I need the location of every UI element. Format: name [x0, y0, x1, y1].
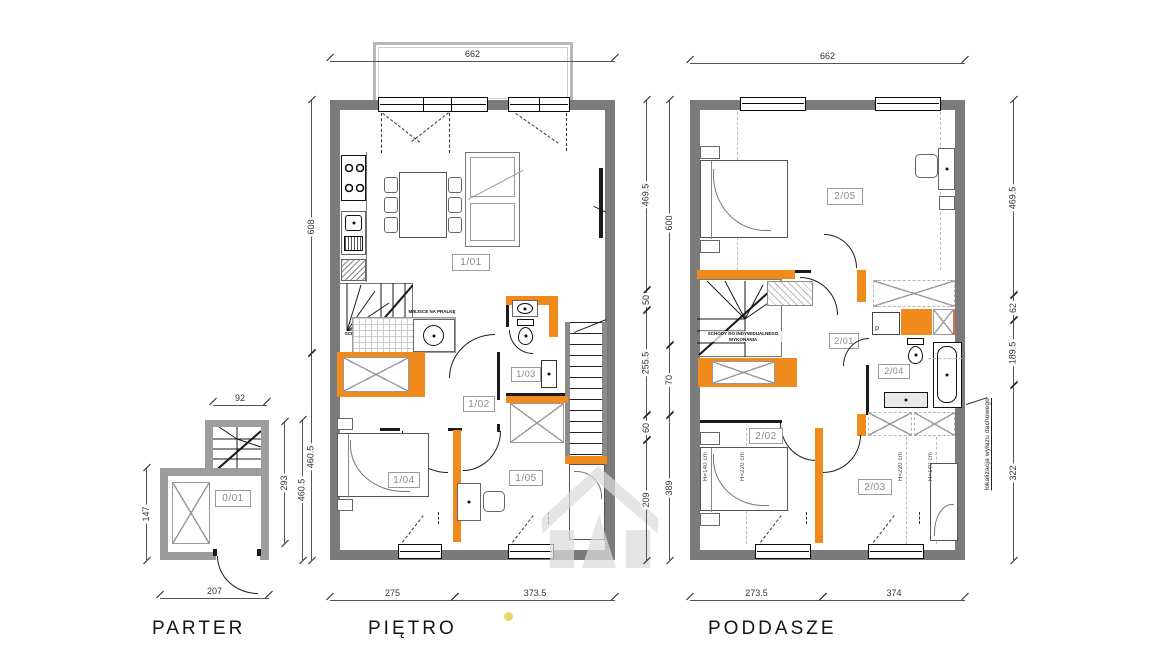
poddasze-dim-r-2: 189.5: [1013, 320, 1014, 385]
poddasze-window-top-right: [875, 97, 941, 111]
floor-title-poddasze: PODDASZE: [708, 618, 837, 640]
window-swing-dash: [919, 512, 920, 524]
poddasze-dim-r-1: 62: [1013, 295, 1014, 320]
poddasze-plan: 2/05 SCHODY DO INDYWIDUALNEGO WYKONANIA …: [0, 0, 1152, 648]
attic-wall-orange-stub: [857, 414, 866, 436]
poddasze-dim-top: 662: [690, 63, 965, 64]
desk-chair: [915, 154, 938, 178]
interior-wall: [866, 365, 869, 415]
roof-line-dashed: [928, 358, 962, 359]
room-label-2-05: 2/05: [827, 188, 863, 205]
bed-2-03: [930, 463, 958, 541]
attic-wall-orange-stub: [857, 270, 866, 302]
bath-sink-cabinet: [884, 392, 928, 408]
desk-shelf: [939, 196, 955, 210]
bed-head-line: [711, 448, 712, 512]
nightstand: [700, 432, 720, 445]
bath-orange-block: [901, 309, 932, 335]
floor-title-pietro: PIĘTRO: [368, 618, 457, 640]
poddasze-window-bottom-right: [868, 544, 924, 559]
bath-wardrobe-xbox: [933, 309, 955, 335]
attic-wall-orange-top: [697, 270, 795, 279]
poddasze-stairs-note: SCHODY DO INDYWIDUALNEGO WYKONANIA: [700, 331, 786, 342]
floor-plans-canvas: 0/01 92 147 293 460.5 207: [0, 0, 1152, 648]
window-swing-dash: [806, 512, 807, 524]
height-label-h140: H=140 cm: [703, 452, 709, 481]
low-storage-xbox: [873, 280, 955, 307]
washer-letter: P: [875, 326, 879, 333]
roof-line-dashed: [940, 112, 941, 270]
roof-line-dashed: [906, 422, 907, 544]
nightstand: [700, 513, 720, 526]
bathtub-icon: [933, 342, 962, 408]
bed-fold: [934, 504, 954, 536]
bed-head-line: [711, 161, 712, 239]
poddasze-dim-r-3: 322: [1013, 385, 1014, 560]
bed-2-05: [700, 160, 788, 238]
yellow-dot-marker: [504, 612, 513, 621]
toilet-icon: [906, 338, 926, 366]
washer-2-04: P: [872, 312, 900, 335]
floor-title-parter: PARTER: [152, 618, 245, 640]
poddasze-dim-bottom-0: 273.5: [690, 600, 823, 601]
roof-hatch-note: lokalizacja wyłazu dachowego: [984, 398, 991, 490]
desk-2-05: [938, 148, 955, 190]
bed-fold: [713, 169, 771, 231]
room-label-2-04: 2/04: [878, 364, 910, 379]
nightstand: [700, 146, 720, 159]
interior-wall: [700, 420, 782, 423]
low-storage-xbox: [868, 412, 912, 436]
low-storage-xbox: [914, 412, 955, 436]
toilet-bowl: [908, 346, 923, 364]
wardrobe-xbox: [712, 361, 775, 384]
interior-wall: [795, 270, 811, 273]
height-label-h220: H=220 cm: [898, 452, 904, 481]
room-label-2-02: 2/02: [749, 428, 783, 444]
height-label-h140: H=140 cm: [928, 452, 934, 481]
room-label-2-03: 2/03: [858, 479, 892, 495]
poddasze-dim-bottom-1: 374: [823, 600, 965, 601]
poddasze-window-top-left: [740, 97, 806, 111]
interior-wall-orange: [815, 428, 823, 543]
poddasze-window-bottom-left: [755, 544, 811, 559]
poddasze-dim-r-0: 469.5: [1013, 100, 1014, 295]
height-label-h220: H=220 cm: [740, 452, 746, 481]
nightstand: [700, 240, 720, 253]
bathtub-inner: [937, 346, 957, 403]
toilet-tank: [907, 338, 924, 345]
